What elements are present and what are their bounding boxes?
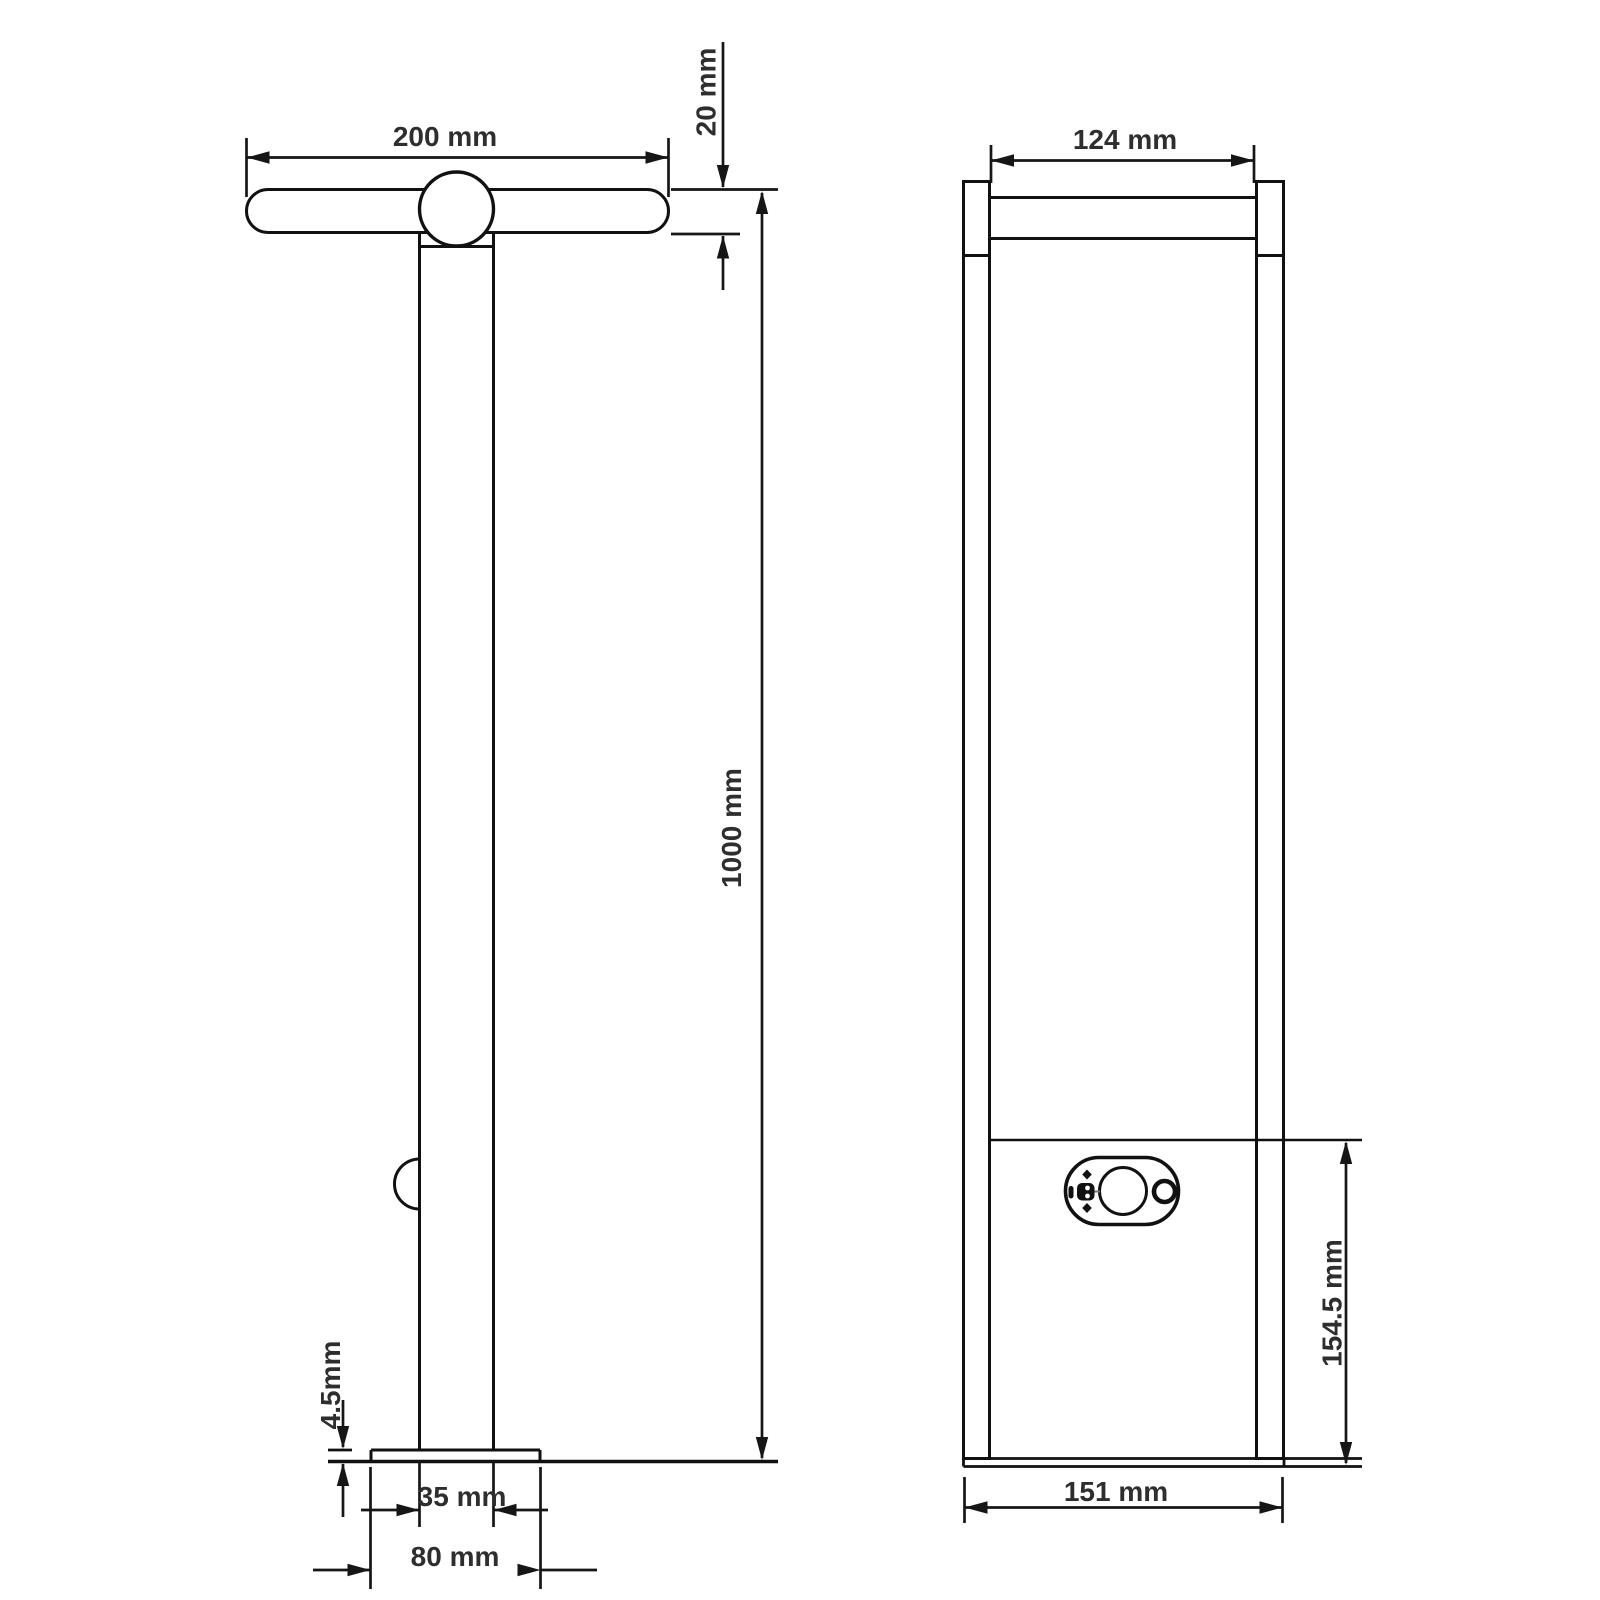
svg-text:1000 mm: 1000 mm	[716, 768, 747, 888]
svg-text:20 mm: 20 mm	[691, 48, 722, 137]
svg-text:35 mm: 35 mm	[418, 1481, 507, 1512]
svg-text:80 mm: 80 mm	[411, 1541, 500, 1572]
svg-text:124 mm: 124 mm	[1073, 124, 1177, 155]
svg-text:200 mm: 200 mm	[393, 121, 497, 152]
svg-text:4.5mm: 4.5mm	[315, 1341, 346, 1430]
svg-text:154.5 mm: 154.5 mm	[1317, 1239, 1348, 1367]
svg-text:151 mm: 151 mm	[1064, 1476, 1168, 1507]
